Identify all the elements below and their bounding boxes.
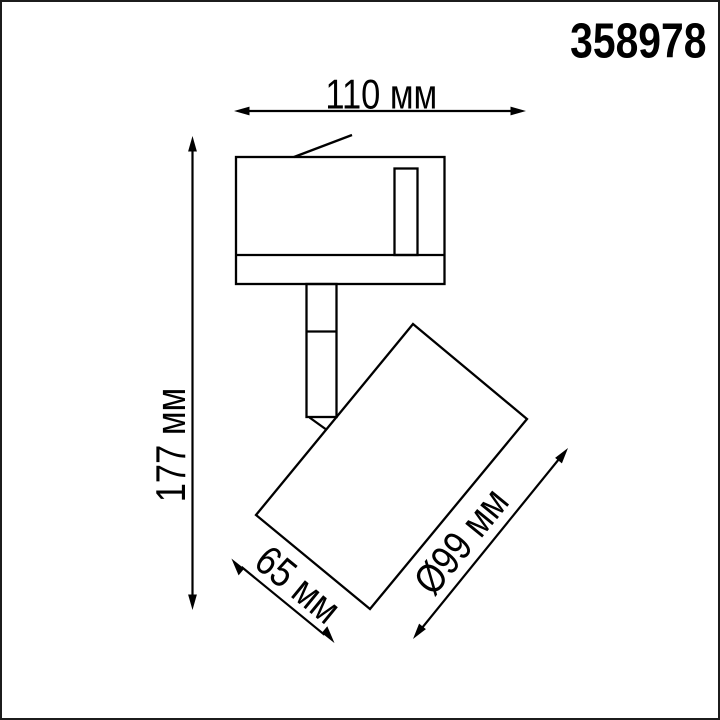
svg-text:177 мм: 177 мм — [149, 388, 195, 503]
svg-text:358978: 358978 — [570, 13, 706, 69]
